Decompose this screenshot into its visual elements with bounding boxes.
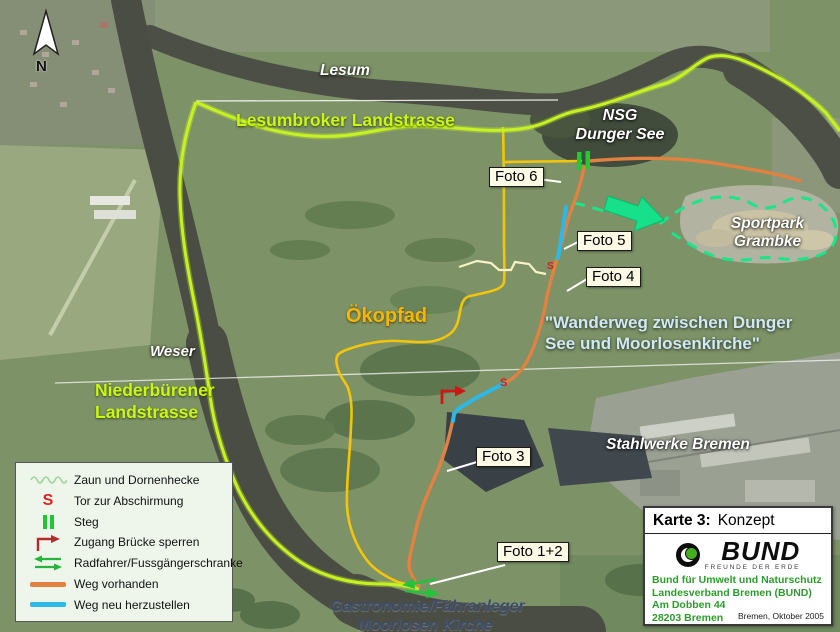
north-arrow: N (24, 8, 74, 84)
map-canvas: S S N Lesum Lesumbroker Landstrasse NSG … (0, 0, 840, 632)
block-bridge-arrow-icon (22, 533, 74, 552)
gate-icon: S (22, 493, 74, 509)
map-title-text: Konzept (718, 512, 775, 529)
new-path-icon (22, 602, 74, 607)
gate-marker: S (547, 261, 554, 272)
map-legend: Zaun und Dornenhecke S Tor zur Abschirmu… (15, 462, 233, 622)
legend-label: Radfahrer/Fussgängerschranke (74, 556, 243, 570)
hangar (90, 196, 130, 205)
map-title-prefix: Karte 3: (653, 512, 711, 529)
legend-row-fence: Zaun und Dornenhecke (22, 470, 228, 490)
legend-label: Steg (74, 515, 99, 529)
industrial-pond (548, 428, 652, 486)
bund-logo: BUND FREUNDE DER ERDE (645, 537, 831, 573)
bund-logo-subtext: FREUNDE DER ERDE (705, 564, 801, 571)
imprint-line2: Landesverband Bremen (BUND) (652, 587, 824, 600)
map-title-box: Karte 3:Konzept BUND FREUNDE DER ERDE Bu… (643, 506, 833, 626)
legend-row-footbridge: Steg (22, 512, 228, 532)
legend-label: Weg neu herzustellen (74, 598, 190, 612)
bund-logo-icon (676, 543, 700, 567)
legend-row-path-new: Weg neu herzustellen (22, 595, 228, 615)
foto-label-6: Foto 6 (489, 167, 544, 187)
sand-patch (790, 230, 834, 250)
legend-label: Tor zur Abschirmung (74, 494, 183, 508)
legend-label: Zugang Brücke sperren (74, 535, 199, 549)
foto-label-3: Foto 3 (476, 447, 531, 467)
legend-label: Weg vorhanden (74, 577, 159, 591)
imprint-line3: Am Dobben 44 (652, 599, 824, 612)
north-arrow-icon (24, 8, 74, 64)
existing-path-icon (22, 582, 74, 587)
airfield (0, 145, 165, 360)
gate-marker: S (500, 377, 507, 389)
barrier-arrows-icon (22, 554, 74, 572)
bund-logo-text: BUND (721, 539, 800, 563)
hangar (94, 210, 136, 219)
map-title: Karte 3:Konzept (645, 508, 831, 534)
sand-patch (696, 229, 736, 247)
foto-label-4: Foto 4 (586, 267, 641, 287)
bund-logo-dot (685, 547, 698, 560)
legend-row-block-bridge: Zugang Brücke sperren (22, 532, 228, 552)
map-date: Bremen, Oktober 2005 (738, 611, 824, 621)
north-label: N (36, 58, 47, 75)
footbridge-icon (22, 515, 74, 529)
legend-row-gate: S Tor zur Abschirmung (22, 491, 228, 511)
foto-label-5: Foto 5 (577, 231, 632, 251)
foto-label-1-2: Foto 1+2 (497, 542, 569, 562)
legend-row-path-existing: Weg vorhanden (22, 574, 228, 594)
suburb-strip (130, 0, 770, 52)
imprint-line1: Bund für Umwelt und Naturschutz (652, 574, 824, 587)
legend-label: Zaun und Dornenhecke (74, 473, 199, 487)
legend-row-barrier: Radfahrer/Fussgängerschranke (22, 553, 228, 573)
fence-hedge-icon (22, 474, 74, 486)
